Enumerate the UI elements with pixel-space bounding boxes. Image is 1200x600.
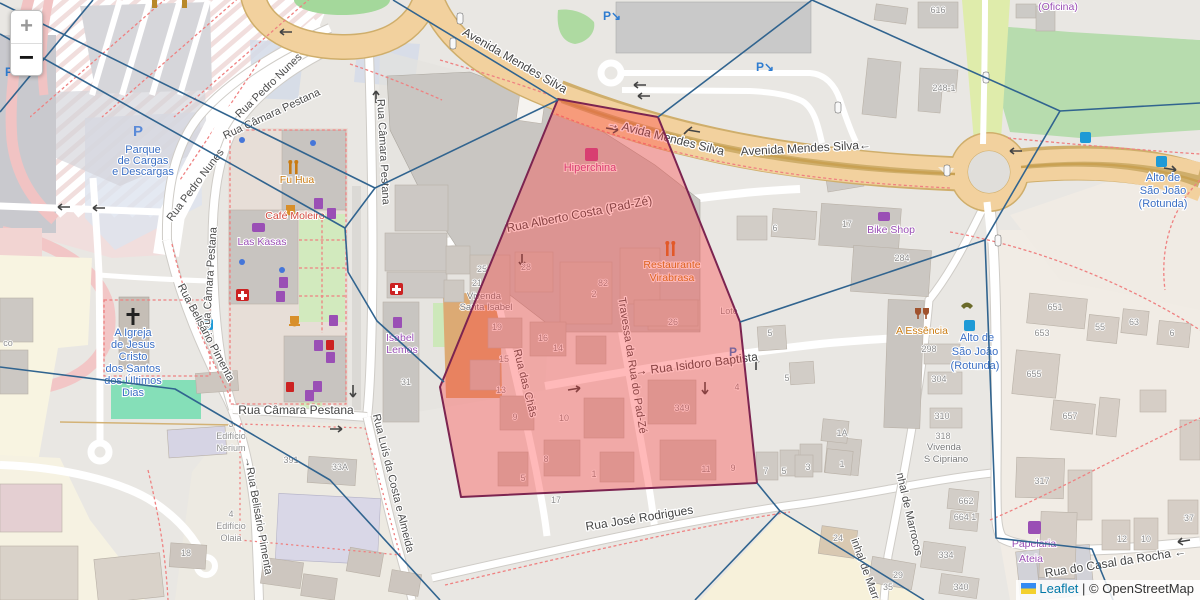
svg-text:1: 1 (839, 459, 844, 469)
svg-text:318: 318 (935, 431, 950, 441)
svg-text:P: P (133, 123, 143, 140)
svg-text:17: 17 (551, 495, 561, 505)
svg-text:12: 12 (1117, 534, 1127, 544)
svg-text:248-1: 248-1 (932, 83, 955, 93)
svg-text:A Igreja: A Igreja (114, 327, 152, 339)
svg-text:298: 298 (921, 344, 936, 354)
svg-text:P↘: P↘ (756, 60, 774, 74)
svg-text:5: 5 (784, 373, 789, 383)
svg-text:5: 5 (767, 328, 772, 338)
svg-text:P↘: P↘ (603, 9, 621, 23)
svg-text:Dias: Dias (122, 387, 145, 399)
svg-text:dos Santos: dos Santos (105, 363, 161, 375)
svg-text:(Oficina): (Oficina) (1038, 1, 1078, 13)
svg-text:Olaia: Olaia (220, 533, 241, 543)
svg-text:317: 317 (1034, 476, 1049, 486)
svg-text:Bike Shop: Bike Shop (867, 224, 915, 236)
svg-text:3: 3 (805, 462, 810, 472)
svg-text:655: 655 (1026, 369, 1041, 379)
svg-text:e Descargas: e Descargas (112, 166, 174, 178)
svg-text:São João: São João (1140, 185, 1186, 197)
svg-text:284: 284 (894, 253, 909, 263)
svg-text:334: 334 (938, 550, 953, 560)
svg-text:10: 10 (1141, 534, 1151, 544)
svg-text:(Rotunda): (Rotunda) (951, 360, 1000, 372)
svg-text:Ateia: Ateia (1019, 553, 1043, 565)
svg-text:4: 4 (228, 509, 233, 519)
svg-text:653: 653 (1034, 328, 1049, 338)
svg-text:São João: São João (952, 346, 998, 358)
svg-text:Vivenda: Vivenda (927, 442, 962, 453)
svg-text:(Rotunda): (Rotunda) (1139, 198, 1188, 210)
svg-text:304: 304 (931, 374, 946, 384)
svg-text:6: 6 (772, 223, 777, 233)
svg-text:co: co (3, 338, 13, 348)
svg-text:6: 6 (1169, 328, 1174, 338)
svg-text:7: 7 (763, 466, 768, 476)
svg-text:Las Kasas: Las Kasas (237, 236, 286, 248)
svg-text:de Jesus: de Jesus (111, 339, 156, 351)
svg-text:Edifício: Edifício (216, 521, 246, 531)
svg-text:5: 5 (781, 466, 786, 476)
svg-text:651: 651 (1047, 302, 1062, 312)
svg-text:310: 310 (934, 411, 949, 421)
svg-text:A Essência: A Essência (896, 325, 948, 337)
svg-text:S Cipriano: S Cipriano (924, 454, 968, 465)
svg-text:662: 662 (958, 496, 973, 506)
svg-text:25: 25 (477, 264, 487, 274)
svg-text:664 1: 664 1 (954, 512, 977, 522)
svg-text:Rua Câmara Pestana: Rua Câmara Pestana (238, 403, 354, 417)
svg-text:340: 340 (953, 582, 968, 592)
svg-text:55: 55 (1095, 322, 1105, 332)
svg-text:18: 18 (181, 548, 191, 558)
svg-text:Cristo: Cristo (119, 351, 148, 363)
svg-text:63: 63 (1129, 317, 1139, 327)
svg-text:657: 657 (1062, 411, 1077, 421)
svg-text:31: 31 (401, 377, 411, 387)
svg-text:35: 35 (883, 582, 893, 592)
svg-text:29: 29 (893, 570, 903, 580)
svg-text:17: 17 (842, 219, 852, 229)
svg-text:Nerium: Nerium (216, 443, 245, 453)
svg-text:Edifício: Edifício (216, 431, 246, 441)
svg-text:1A: 1A (836, 428, 847, 438)
svg-text:Alto de: Alto de (1146, 172, 1180, 184)
svg-text:616: 616 (930, 5, 945, 15)
svg-text:33A: 33A (332, 462, 348, 472)
svg-text:24: 24 (833, 533, 843, 543)
svg-text:Fu Hua: Fu Hua (280, 174, 315, 186)
svg-text:37: 37 (1184, 513, 1194, 523)
